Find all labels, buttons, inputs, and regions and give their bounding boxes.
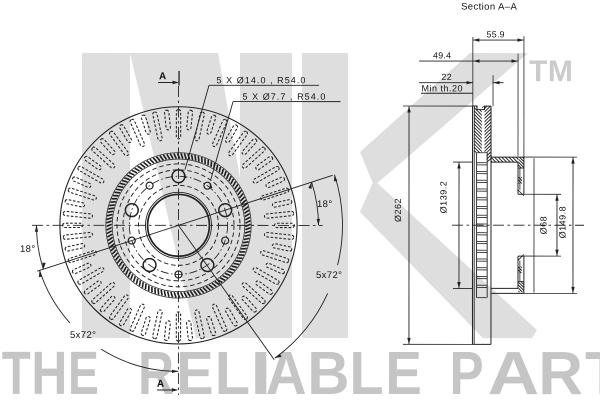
svg-text:5 X Ø7.7 , R54.0: 5 X Ø7.7 , R54.0: [243, 92, 327, 102]
svg-text:E: E: [176, 339, 213, 400]
svg-text:H: H: [31, 339, 67, 400]
svg-text:B: B: [307, 339, 349, 400]
svg-text:5x72°: 5x72°: [70, 330, 96, 341]
svg-text:Ø149.8: Ø149.8: [557, 206, 567, 239]
svg-text:55.9: 55.9: [487, 29, 505, 39]
svg-text:5x72°: 5x72°: [316, 270, 342, 281]
svg-text:Ø68: Ø68: [538, 216, 548, 235]
svg-text:R: R: [538, 339, 583, 400]
svg-text:L: L: [350, 339, 384, 400]
svg-text:A: A: [266, 339, 307, 400]
svg-text:A: A: [488, 339, 540, 400]
svg-text:A: A: [159, 71, 166, 82]
svg-text:Min th.20: Min th.20: [422, 83, 464, 93]
svg-text:E: E: [68, 339, 99, 400]
svg-text:A: A: [157, 379, 164, 390]
svg-text:22: 22: [442, 72, 452, 82]
svg-text:Ø262: Ø262: [393, 198, 403, 222]
svg-text:18°: 18°: [20, 244, 36, 255]
svg-text:E: E: [385, 339, 422, 400]
svg-text:TM: TM: [529, 55, 573, 88]
svg-text:P: P: [450, 339, 484, 400]
svg-text:L: L: [215, 339, 250, 400]
svg-text:Section A–A: Section A–A: [461, 2, 517, 13]
svg-text:Ø139.2: Ø139.2: [438, 181, 448, 214]
svg-text:T: T: [585, 339, 600, 400]
svg-text:49.4: 49.4: [433, 50, 451, 60]
svg-text:18°: 18°: [317, 199, 333, 210]
svg-text:5 X Ø14.0 , R54.0: 5 X Ø14.0 , R54.0: [217, 75, 307, 85]
svg-text:T: T: [2, 339, 31, 400]
